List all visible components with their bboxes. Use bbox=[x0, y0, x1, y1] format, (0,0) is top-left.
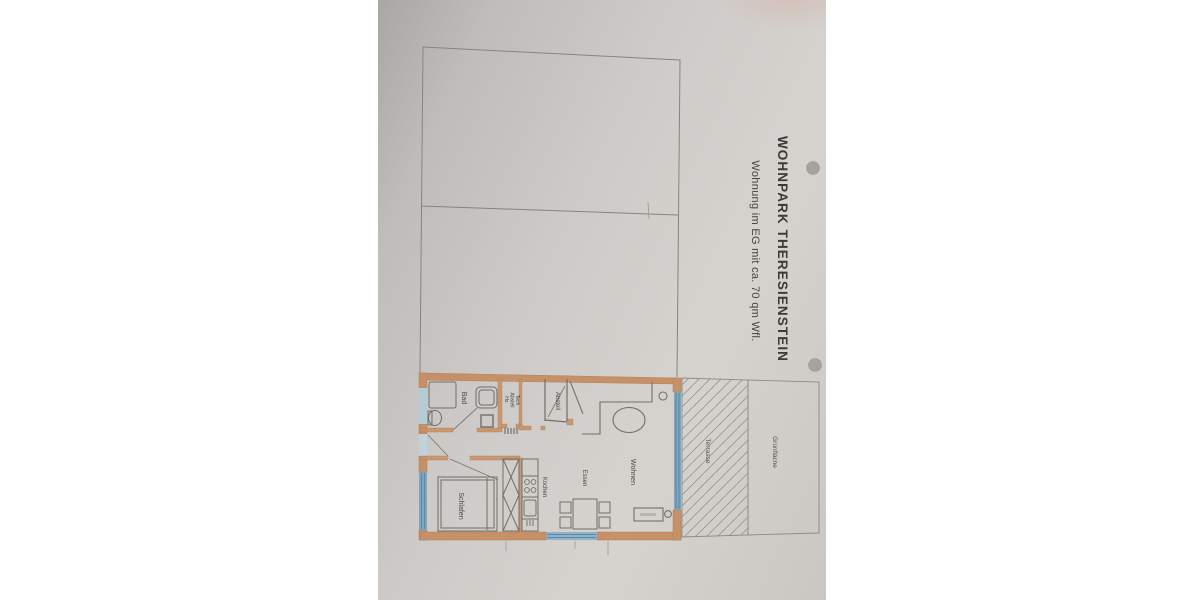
wall-left-1 bbox=[419, 373, 427, 388]
corridor-bottom-wall-a bbox=[519, 426, 531, 430]
schlafen-furniture bbox=[438, 459, 519, 531]
wall-bottom-1 bbox=[420, 532, 546, 540]
room-label-abstell: Abstell bbox=[554, 392, 560, 410]
room-label-kochen: Kochen bbox=[541, 477, 547, 497]
chair bbox=[560, 517, 571, 528]
title-line2: Wohnung im EG mit ca. 70 qm Wfl. bbox=[749, 160, 761, 341]
bad-bottom-wall-b bbox=[477, 428, 502, 432]
hole-punch-bottom bbox=[809, 359, 822, 372]
washer bbox=[429, 382, 456, 408]
wall-right-1 bbox=[673, 378, 681, 392]
bad-fixtures bbox=[428, 382, 497, 427]
bad-right-wall bbox=[498, 379, 502, 431]
chair bbox=[599, 517, 610, 528]
terrace-door bbox=[674, 392, 681, 510]
wall-top bbox=[421, 373, 677, 384]
stove bbox=[525, 480, 536, 493]
green-area bbox=[748, 380, 819, 535]
dimension-ticks bbox=[506, 541, 608, 555]
room-label-hz-abstell: Abstell bbox=[509, 392, 515, 407]
room-label-hz-tech: Tech bbox=[514, 395, 520, 406]
abstell-corner-stub bbox=[567, 419, 573, 425]
room-label-essen: Essen bbox=[581, 470, 587, 487]
terrace-area bbox=[682, 378, 819, 537]
hole-punches bbox=[807, 162, 822, 372]
room-label-terrasse: Terrasse bbox=[704, 439, 711, 464]
plant bbox=[665, 511, 672, 518]
screenshot-stage: WOHNPARK THERESIENSTEIN Wohnung im EG mi… bbox=[0, 0, 1200, 600]
title-line1: WOHNPARK THERESIENSTEIN bbox=[775, 136, 790, 362]
chair bbox=[560, 502, 571, 513]
document-photo: WOHNPARK THERESIENSTEIN Wohnung im EG mi… bbox=[378, 0, 826, 600]
schlafen-top-wall-a bbox=[421, 456, 448, 460]
essen-furniture bbox=[560, 499, 610, 529]
hole-punch-top bbox=[807, 162, 820, 175]
bad-window bbox=[419, 388, 427, 424]
room-label-hz: Hz. bbox=[503, 396, 509, 404]
dining-table bbox=[573, 499, 597, 529]
room-label-schlafen: Schlafen bbox=[457, 492, 464, 519]
floor-lamp bbox=[659, 392, 667, 400]
sink bbox=[481, 415, 493, 427]
room-label-bad: Bad bbox=[460, 392, 467, 405]
corridor-bottom-wall-b bbox=[541, 426, 545, 430]
floor-plan-drawing: WOHNPARK THERESIENSTEIN Wohnung im EG mi… bbox=[378, 0, 826, 600]
coffee-table bbox=[613, 408, 645, 433]
hall-door bbox=[428, 435, 448, 456]
entrance-door bbox=[570, 381, 583, 414]
hz-bottom-wall-a bbox=[502, 424, 507, 428]
toilet bbox=[429, 411, 442, 426]
wall-bottom-2 bbox=[597, 532, 681, 540]
chair bbox=[599, 502, 610, 513]
bed bbox=[438, 477, 497, 531]
corner-sofa bbox=[582, 382, 652, 434]
room-label-wohnen: Wohnen bbox=[629, 459, 636, 485]
faucet-marks bbox=[527, 520, 533, 526]
radiator-symbol bbox=[505, 428, 517, 434]
building-outline bbox=[420, 47, 680, 377]
kitchen-sink bbox=[524, 500, 536, 516]
schlafen-window bbox=[419, 472, 427, 530]
wall-right-2 bbox=[673, 510, 681, 540]
wohnen-window bbox=[546, 532, 597, 540]
bad-door bbox=[453, 408, 477, 430]
kochen-furniture bbox=[522, 459, 538, 531]
bad-bottom-wall-a bbox=[421, 428, 453, 432]
hall-window bbox=[419, 434, 427, 456]
wardrobe bbox=[503, 459, 519, 531]
room-label-gruenflaeche: Grünfläche bbox=[771, 436, 778, 468]
wohnen-furniture bbox=[582, 382, 671, 521]
